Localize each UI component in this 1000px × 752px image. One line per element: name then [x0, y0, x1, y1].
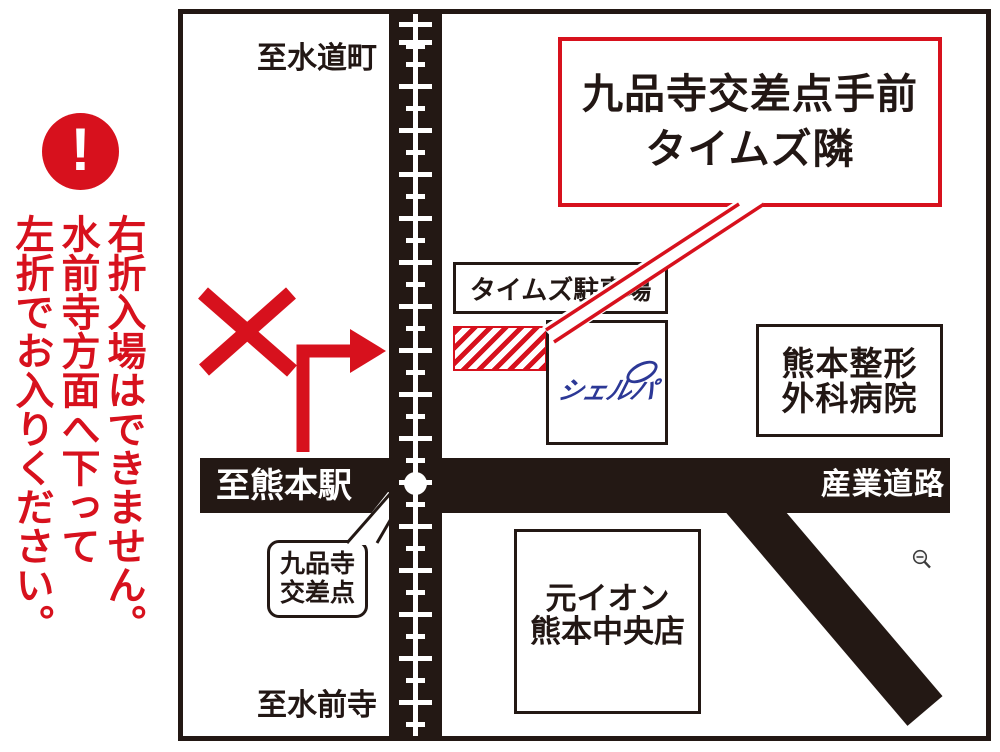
warning-text: 右折入場はできません。 水前寺方面へ下って 左折でお入りください。 [8, 214, 146, 704]
times-parking-box: タイムズ駐車場 [453, 262, 668, 314]
former-aeon-label: 元イオン 熊本中央店 [530, 582, 685, 648]
area-label-suidocho: 至水道町 [257, 33, 377, 77]
hospital-box: 熊本整形 外科病院 [756, 324, 943, 437]
railway-line [389, 14, 442, 736]
railway-ties-short [406, 14, 425, 736]
times-parking-label: タイムズ駐車場 [470, 270, 651, 307]
warning-exclamation-glyph: ! [71, 120, 91, 180]
intersection-label-text: 九品寺 交差点 [280, 550, 355, 608]
callout-text: 九品寺交差点手前 タイムズ隣 [582, 67, 918, 177]
access-map: ! 右折入場はできません。 水前寺方面へ下って 左折でお入りください。 至熊本駅… [0, 0, 1000, 752]
warning-exclamation-icon: ! [42, 113, 119, 190]
destination-site-hatched [453, 326, 547, 371]
hospital-label: 熊本整形 外科病院 [782, 346, 918, 416]
intersection-label-box: 九品寺 交差点 [267, 540, 368, 618]
former-aeon-box: 元イオン 熊本中央店 [514, 529, 701, 714]
road-label-kumamoto-station: 至熊本駅 [216, 468, 352, 504]
area-label-suizenji: 至水前寺 [257, 680, 377, 724]
intersection-dot [404, 472, 427, 495]
sherpa-logo: シェルパ [549, 371, 665, 407]
sherpa-building-box: シェルパ [546, 320, 668, 445]
road-label-sangyo-doro: 産業道路 [821, 469, 945, 501]
callout-box: 九品寺交差点手前 タイムズ隣 [558, 37, 942, 207]
